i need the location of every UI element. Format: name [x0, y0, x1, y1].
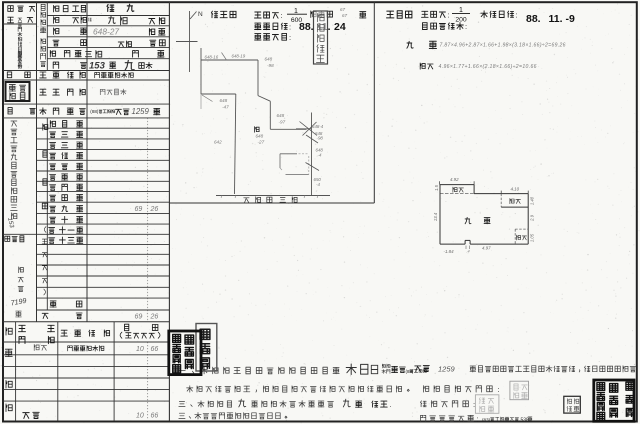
svg-text:4.96×1.77+1.66×(2.18×1.66)÷2=1: 4.96×1.77+1.66×(2.18×1.66)÷2=10.66 — [439, 64, 537, 70]
svg-text:1.05: 1.05 — [530, 233, 535, 242]
svg-text:4.10: 4.10 — [511, 186, 520, 191]
svg-text:88.: 88. — [299, 21, 314, 33]
svg-text::: : — [281, 11, 283, 20]
svg-text:10: 10 — [136, 346, 144, 353]
svg-text:67: 67 — [342, 13, 348, 18]
svg-text::: : — [516, 10, 518, 19]
svg-text:648: 648 — [265, 57, 273, 62]
svg-text:24: 24 — [334, 21, 346, 33]
svg-text:-98: -98 — [317, 136, 324, 141]
svg-text:-47: -47 — [222, 105, 229, 110]
svg-text:-97: -97 — [279, 120, 286, 125]
svg-text:1.5: 1.5 — [434, 184, 439, 190]
svg-text:648: 648 — [220, 98, 228, 103]
svg-text:648-16: 648-16 — [205, 55, 219, 60]
svg-text::: : — [289, 33, 291, 42]
svg-text:4.92: 4.92 — [450, 177, 459, 182]
svg-text:N: N — [198, 11, 203, 18]
svg-text::: : — [473, 400, 475, 409]
svg-text::: : — [477, 414, 479, 423]
svg-text:67: 67 — [340, 7, 346, 12]
svg-text:-9: -9 — [566, 13, 575, 25]
svg-text:.4: .4 — [467, 250, 470, 254]
svg-text:648-19: 648-19 — [232, 54, 246, 59]
svg-text::: : — [289, 23, 291, 32]
svg-text:.: . — [390, 402, 392, 409]
svg-text:-98: -98 — [267, 63, 274, 68]
svg-text:1259: 1259 — [438, 364, 456, 373]
svg-text:648-4: 648-4 — [312, 124, 324, 129]
svg-text:66: 66 — [151, 412, 159, 419]
svg-text:11.: 11. — [549, 13, 563, 25]
svg-text:69: 69 — [135, 314, 143, 321]
svg-text:4.97: 4.97 — [482, 245, 491, 250]
svg-text:2.9: 2.9 — [529, 214, 534, 221]
svg-text::: : — [465, 22, 467, 31]
svg-text:648-27: 648-27 — [93, 26, 119, 36]
svg-text:1259: 1259 — [132, 107, 150, 116]
svg-text::: : — [448, 10, 450, 19]
svg-text:-27: -27 — [258, 139, 265, 144]
svg-text:88.: 88. — [526, 13, 541, 25]
svg-text:69: 69 — [135, 206, 143, 213]
svg-text:1: 1 — [459, 7, 463, 14]
svg-text:7.87×4.96+2.87×1.66+1.98×(3.18: 7.87×4.96+2.87×1.66+1.98×(3.18×1.66)÷2=6… — [440, 42, 566, 48]
svg-text:648: 648 — [277, 113, 285, 118]
svg-text:538: 538 — [521, 417, 530, 423]
svg-text:26: 26 — [150, 206, 159, 213]
svg-text:153: 153 — [89, 61, 106, 72]
svg-text:(88): (88) — [90, 109, 99, 114]
svg-text:-1.84: -1.84 — [444, 249, 455, 254]
svg-text:10: 10 — [136, 412, 144, 419]
svg-text:-4: -4 — [318, 153, 322, 158]
svg-text:66: 66 — [151, 346, 159, 353]
svg-text:26: 26 — [150, 314, 159, 321]
svg-text:642: 642 — [214, 140, 222, 145]
svg-text:648: 648 — [256, 133, 264, 138]
svg-text:(83): (83) — [482, 417, 491, 422]
svg-text:13.4: 13.4 — [433, 212, 438, 221]
svg-text::: : — [498, 385, 500, 394]
svg-text:1.40: 1.40 — [529, 196, 534, 205]
svg-text:-4: -4 — [316, 182, 320, 187]
